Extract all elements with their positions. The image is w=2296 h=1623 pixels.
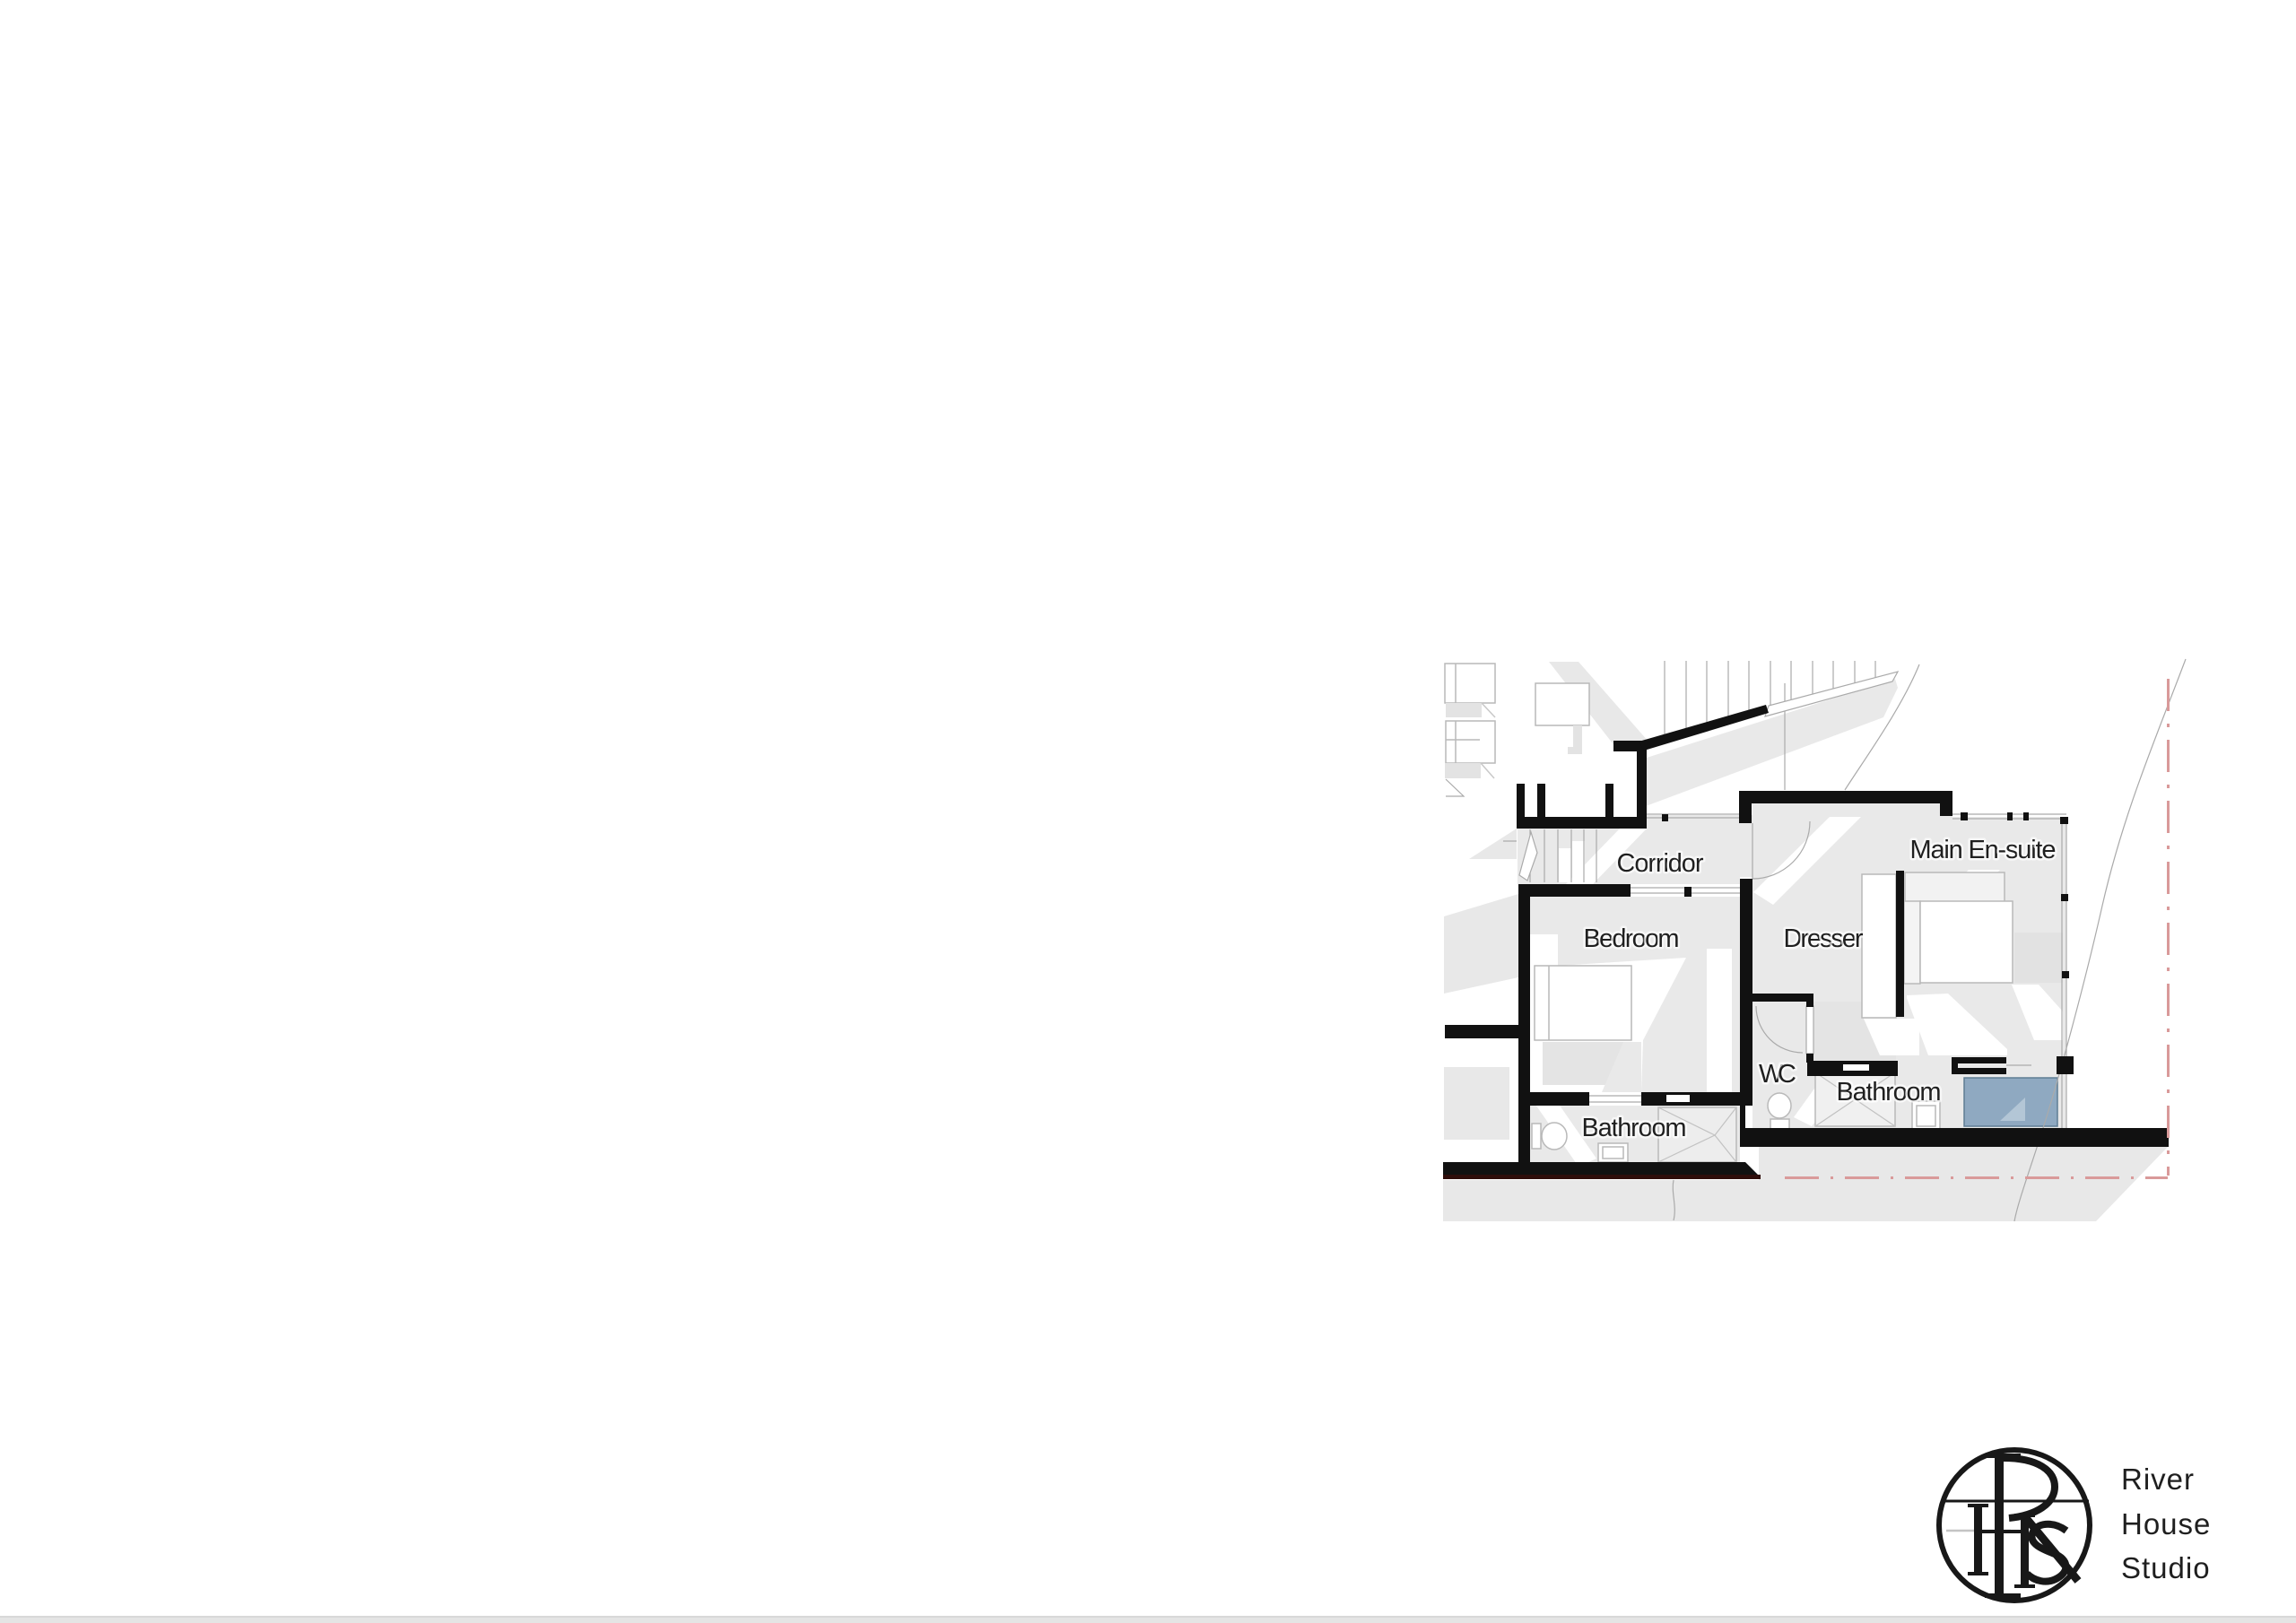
svg-text:River: River	[2121, 1462, 2195, 1496]
svg-text:Corridor: Corridor	[1617, 849, 1704, 878]
svg-text:Dresser: Dresser	[1784, 924, 1864, 953]
svg-text:Bedroom: Bedroom	[1584, 924, 1680, 953]
svg-text:Bathroom: Bathroom	[1582, 1114, 1687, 1142]
svg-text:House: House	[2121, 1507, 2211, 1541]
svg-text:Studio: Studio	[2121, 1551, 2211, 1584]
svg-text:WC: WC	[1759, 1060, 1796, 1089]
svg-text:Main En-suite: Main En-suite	[1910, 836, 2057, 864]
svg-text:Bathroom: Bathroom	[1837, 1078, 1942, 1107]
